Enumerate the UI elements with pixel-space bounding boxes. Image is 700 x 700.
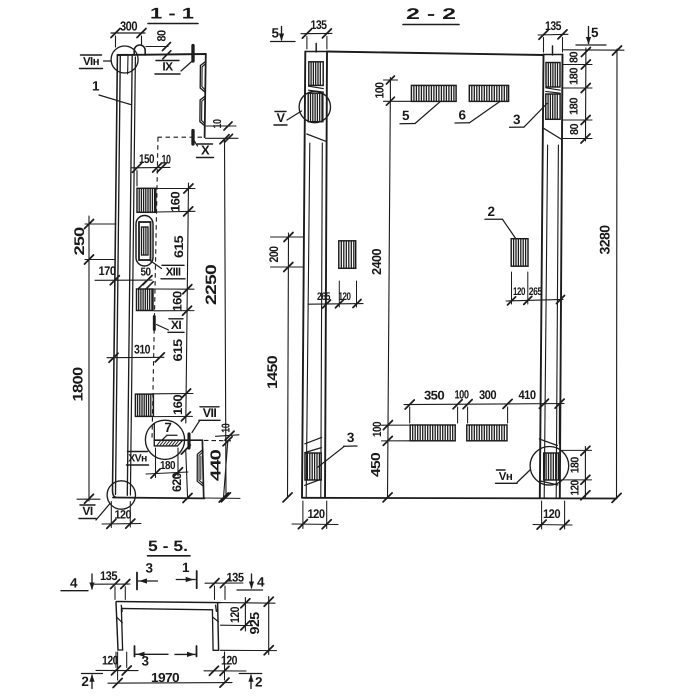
svg-text:120: 120 [570,480,582,495]
svg-text:80: 80 [569,124,581,135]
svg-text:100: 100 [370,421,384,437]
svg-text:X: X [201,142,210,157]
svg-text:Vн: Vн [499,471,513,483]
svg-text:5: 5 [272,26,280,41]
svg-text:1: 1 [182,560,190,575]
svg-text:310: 310 [134,342,151,356]
svg-text:300: 300 [120,18,137,33]
svg-text:120: 120 [221,653,238,667]
svg-text:300: 300 [479,388,497,402]
svg-text:4: 4 [257,575,265,590]
svg-text:410: 410 [519,388,537,402]
svg-text:3: 3 [347,430,355,445]
svg-text:180: 180 [570,457,582,473]
svg-text:1800: 1800 [70,367,86,402]
svg-text:5: 5 [402,108,410,123]
svg-text:4: 4 [70,576,78,591]
svg-text:10: 10 [212,119,224,128]
svg-text:135: 135 [100,569,118,583]
svg-text:160: 160 [168,191,182,212]
svg-text:100: 100 [455,388,470,402]
svg-text:IX: IX [162,60,173,74]
svg-text:620: 620 [170,472,184,492]
svg-text:6: 6 [459,108,467,123]
svg-text:180: 180 [160,460,175,472]
svg-text:50: 50 [141,267,151,279]
svg-text:450: 450 [368,453,383,477]
svg-text:2 - 2: 2 - 2 [406,6,456,23]
svg-text:120: 120 [115,508,132,522]
svg-text:XVн: XVн [128,452,147,464]
svg-text:250: 250 [71,226,87,255]
svg-text:440: 440 [208,449,224,481]
svg-text:VIн: VIн [83,56,100,68]
svg-text:2: 2 [81,674,88,689]
svg-text:615: 615 [171,339,185,362]
svg-text:1450: 1450 [264,355,280,389]
svg-text:120: 120 [339,291,351,303]
svg-text:1 - 1: 1 - 1 [150,6,195,23]
svg-text:80: 80 [569,52,581,63]
svg-text:XI: XI [171,318,181,332]
svg-text:7: 7 [164,420,171,435]
svg-text:170: 170 [99,264,117,278]
svg-text:VI: VI [82,504,92,518]
svg-text:350: 350 [424,388,445,402]
svg-text:3280: 3280 [597,225,613,255]
svg-text:2: 2 [488,204,495,219]
svg-text:615: 615 [172,235,186,258]
svg-text:925: 925 [247,612,262,634]
svg-text:1: 1 [92,79,100,94]
svg-text:V: V [277,111,286,125]
svg-text:80: 80 [155,30,169,42]
svg-text:5 - 5.: 5 - 5. [148,538,188,555]
svg-text:180: 180 [569,68,581,85]
svg-text:160: 160 [171,394,185,415]
svg-text:120: 120 [543,507,561,521]
svg-text:XIII: XIII [166,266,181,278]
svg-text:135: 135 [227,570,245,584]
svg-text:180: 180 [569,98,581,115]
svg-text:160: 160 [170,291,184,312]
svg-text:120: 120 [228,606,242,623]
svg-text:120: 120 [308,507,326,521]
svg-text:200: 200 [267,246,281,263]
svg-text:3: 3 [513,112,521,127]
svg-text:2400: 2400 [369,249,384,275]
svg-text:5: 5 [591,25,599,40]
svg-text:2250: 2250 [203,265,220,305]
svg-text:2: 2 [255,675,262,690]
svg-text:VII: VII [203,406,217,420]
svg-text:10: 10 [221,424,233,433]
svg-text:135: 135 [311,18,328,32]
svg-text:3: 3 [146,561,154,576]
svg-text:3: 3 [142,653,150,668]
svg-text:100: 100 [373,82,387,99]
